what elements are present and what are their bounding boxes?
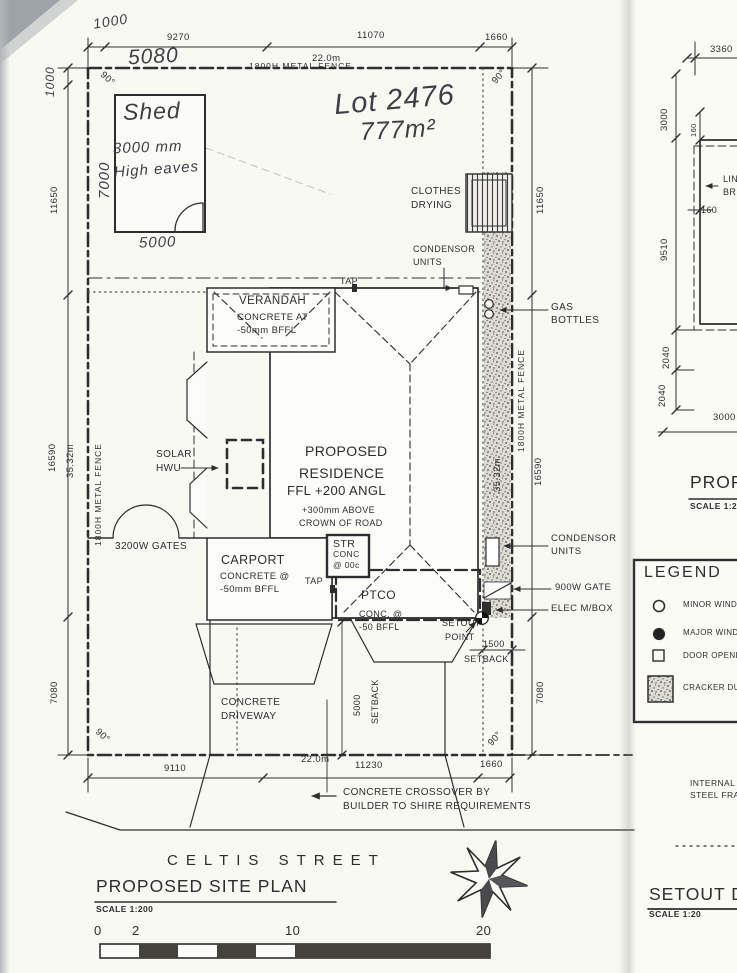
condensor-top-label: CONDENSOR (413, 244, 475, 254)
legend-item-minor-window: MINOR WINDO (683, 600, 737, 609)
elec-mbox-label: ELEC M/BOX (551, 604, 613, 615)
condensor-top-label2: UNITS (413, 257, 442, 267)
handwritten-offset-left: 1000 (44, 66, 58, 97)
clothes-drying-label2: DRYING (411, 200, 452, 212)
setout-point-label: SETOUT (442, 618, 481, 628)
setout-detail-title: SETOUT DET (649, 884, 737, 904)
legend-box (634, 560, 737, 722)
gates-label: 3200W GATES (115, 541, 187, 553)
setback-1500-value: 1500 (483, 639, 505, 649)
detail-dim-3000-top: 3000 (660, 108, 671, 131)
dim-right-3: 7080 (536, 681, 547, 704)
door-opening-symbol (653, 650, 664, 661)
gas-bottles-label2: BOTTLES (551, 315, 599, 327)
legend-item-door-opening: DOOR OPENIN (683, 651, 737, 660)
setout-point-label2: POINT (445, 632, 475, 642)
detail-dim-3000-bot: 3000 (713, 413, 736, 424)
detail-dim-160-a: 160 (690, 123, 699, 137)
scalebar-0: 0 (94, 924, 102, 939)
plan-scale: SCALE 1:200 (96, 905, 153, 915)
gate-900-label: 900W GATE (555, 583, 611, 594)
scalebar-20: 20 (476, 924, 491, 939)
residence-note: +300mm ABOVE (302, 505, 375, 515)
setback-5000-value: 5000 (352, 694, 362, 716)
carport-label: CARPORT (221, 553, 285, 567)
cracker-dust-symbol (648, 676, 673, 702)
dim-right-2: 16590 (534, 458, 545, 486)
ptco-label2: CONC. @ (359, 609, 402, 619)
crossover-note: CONCRETE CROSSOVER BY (343, 787, 490, 799)
handwritten-shed-name: Shed (123, 97, 182, 125)
str-label3: @ 00c (333, 561, 360, 571)
internal-note: INTERNAL (690, 779, 735, 789)
legend-title: LEGEND (644, 564, 722, 582)
ptco-label: PTCO (361, 589, 396, 603)
dim-left-3: 7080 (50, 681, 61, 704)
handwritten-shed-depth: 5000 (139, 233, 177, 252)
residence-ffl-label: FFL +200 ANGL (287, 484, 386, 499)
detail-dim-160-b: 160 (701, 205, 717, 215)
setback-1500-label: SETBACK (464, 654, 509, 664)
tap-mid-symbol (330, 585, 335, 593)
condensor-right-label: CONDENSOR (551, 534, 616, 545)
crossover-note2: BUILDER TO SHIRE REQUIREMENTS (343, 801, 531, 813)
clothes-drying-label: CLOTHES (411, 186, 461, 198)
carport-label2: CONCRETE @ (220, 572, 290, 583)
condensor-right-label2: UNITS (551, 547, 582, 558)
detail-dim-2040-a: 2040 (662, 346, 673, 369)
detail-dim-9510: 9510 (660, 238, 671, 261)
scan-edge-shadow (0, 0, 10, 973)
dim-left-2: 16590 (48, 444, 59, 472)
scalebar-2: 2 (132, 924, 140, 939)
handwritten-lot-area: 777m² (359, 114, 436, 147)
scale-bar (100, 944, 490, 958)
handwritten-5080: 5080 (127, 44, 179, 71)
detail-dim-2040-b: 2040 (658, 384, 669, 407)
driveway-label: CONCRETE (221, 697, 280, 709)
street-name: CELTIS STREET (167, 852, 386, 869)
condensor-unit-right-symbol (486, 538, 499, 566)
residence-label2: RESIDENCE (299, 465, 384, 481)
dim-bottom-2: 11230 (355, 761, 383, 772)
scalebar-10: 10 (285, 924, 300, 939)
fence-label-right: 1800H METAL FENCE (517, 349, 527, 452)
handwritten-shed-note1: 3000 mm (113, 138, 183, 158)
condensor-unit-top-symbol (459, 286, 473, 294)
gas-bottles-label: GAS (551, 302, 573, 314)
tap-top-label: TAP (340, 276, 358, 286)
gate-900-symbol (484, 582, 511, 599)
legend-item-major-window: MAJOR WINDO (683, 628, 737, 637)
verandah-label2: CONCRETE AT (237, 313, 308, 324)
ptco-label3: -50 BFFL (359, 622, 400, 632)
detail-note-lin: LIN (723, 174, 737, 184)
dim-top-1: 9270 (167, 33, 190, 44)
detail-note-bri: BRI (723, 187, 737, 197)
solar-hwu-label: SOLAR (156, 449, 192, 461)
scanned-site-plan-sheet: { "handwritten": { "offset_top": "1000",… (0, 0, 737, 973)
dim-left-1: 11650 (50, 186, 61, 214)
detail-title-fragment: PROP (690, 472, 737, 492)
residence-label: PROPOSED (305, 443, 388, 459)
major-window-symbol (654, 629, 665, 640)
driveway-label2: DRIVEWAY (221, 711, 276, 723)
residence-note2: CROWN OF ROAD (299, 518, 383, 528)
dim-left-total: 35.32m (66, 444, 77, 478)
internal-note2: STEEL FRA (690, 791, 737, 801)
setout-detail-scale: SCALE 1:20 (649, 910, 701, 920)
plan-title: PROPOSED SITE PLAN (96, 876, 308, 896)
dim-right-total: 35.32m (493, 458, 504, 492)
page-fold-shadow (618, 0, 636, 973)
legend-item-cracker-dust: CRACKER DUS (683, 683, 737, 692)
verandah-label: VERANDAH (239, 295, 306, 308)
dim-top-3: 1660 (485, 33, 508, 44)
dim-top-2: 11070 (357, 31, 385, 42)
dim-bottom-3: 1660 (480, 760, 503, 771)
minor-window-symbol (654, 601, 665, 612)
carport-label3: -50mm BFFL (220, 585, 279, 596)
fence-label-top: 1800H METAL FENCE (249, 62, 352, 72)
compass-star-icon (444, 834, 534, 924)
solar-hwu-label2: HWU (156, 463, 181, 475)
dim-bottom-1: 9110 (164, 764, 186, 775)
detail-dim-3360: 3360 (710, 45, 733, 56)
handwritten-shed-width: 7000 (96, 162, 113, 199)
tap-mid-label: TAP (305, 576, 323, 586)
detail-scale: SCALE 1:20 (690, 502, 737, 512)
fence-label-left: 1800H METAL FENCE (94, 443, 104, 546)
dim-right-1: 11650 (536, 186, 547, 214)
verandah-label3: -50mm BFFL (237, 326, 296, 337)
str-label2: CONC (333, 550, 360, 560)
dim-bottom-total: 22.0m (301, 755, 329, 766)
setback-5000-label: SETBACK (370, 679, 380, 724)
